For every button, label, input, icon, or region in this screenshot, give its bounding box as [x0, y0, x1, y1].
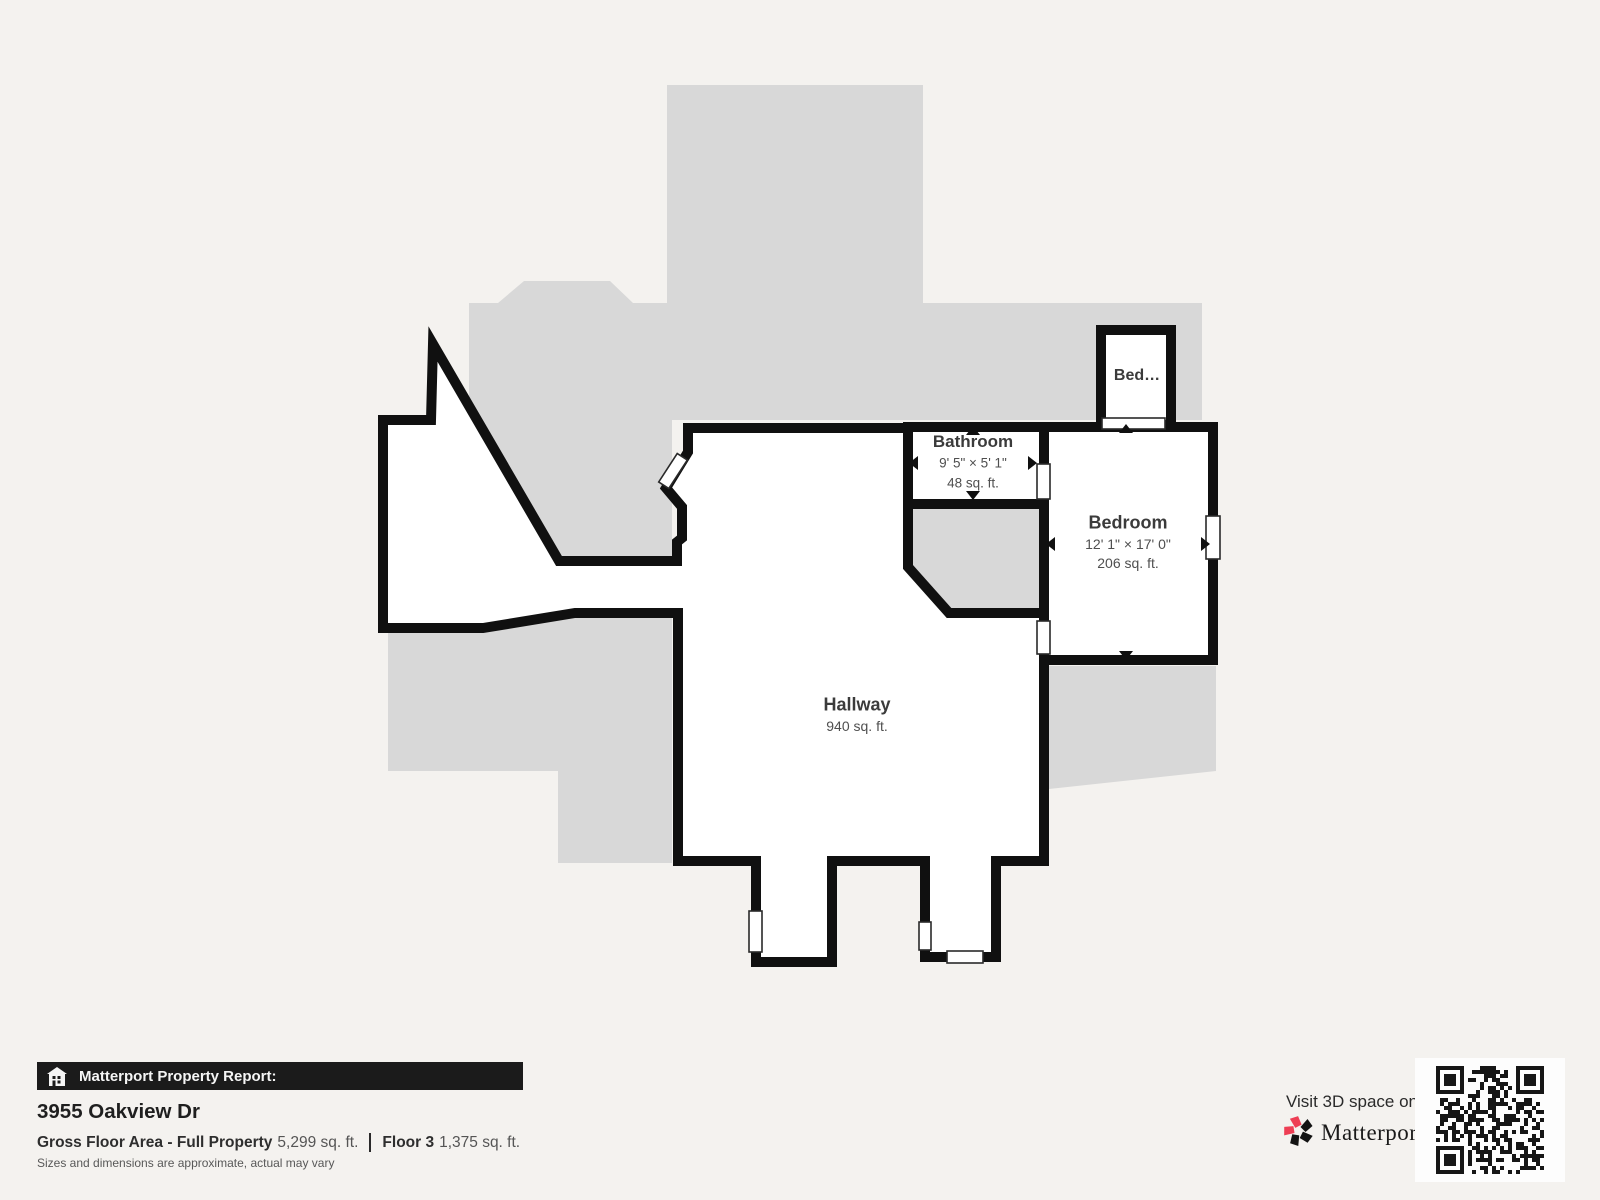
bathroom-bedroom-door [1037, 464, 1050, 499]
floor-area-stats: Gross Floor Area - Full Property 5,299 s… [37, 1133, 520, 1152]
bedroom-area: 206 sq. ft. [1097, 555, 1158, 571]
report-title-bar: Matterport Property Report: [37, 1062, 523, 1090]
small-bedroom-name: Bed… [1114, 367, 1160, 385]
hallway-area: 940 sq. ft. [826, 718, 887, 734]
stats-divider [369, 1133, 371, 1152]
matterport-pinwheel-icon [1283, 1115, 1314, 1151]
bedroom-dimensions: 12' 1" × 17' 0" [1085, 536, 1171, 552]
silhouette-bottom-right [1049, 666, 1216, 789]
small-bedroom-door-sill [1102, 418, 1165, 429]
floor-area-value: 1,375 sq. ft. [439, 1134, 520, 1152]
hallway-right-tab-side-window [919, 922, 931, 950]
disclaimer-text: Sizes and dimensions are approximate, ac… [37, 1156, 334, 1170]
matterport-wordmark: Matterport [1321, 1120, 1424, 1146]
gross-area-label: Gross Floor Area - Full Property [37, 1134, 272, 1152]
gross-area-value: 5,299 sq. ft. [277, 1134, 358, 1152]
bathroom-name: Bathroom [933, 432, 1013, 452]
silhouette-bottom-left [388, 633, 558, 771]
stairwell-area [908, 504, 1044, 613]
floor-plan [0, 0, 1600, 1035]
bathroom-label: Bathroom [933, 432, 1013, 452]
hallway-left-tab-window [749, 911, 762, 952]
floor-label: Floor 3 [382, 1134, 434, 1152]
silhouette-top-block [667, 85, 923, 310]
bedroom-window [1206, 516, 1220, 559]
bathroom-dimensions: 9' 5" × 5' 1" [939, 456, 1007, 471]
qr-code [1436, 1066, 1544, 1174]
hallway-right-tab-bottom-window [947, 951, 983, 963]
report-title: Matterport Property Report: [79, 1068, 277, 1085]
bathroom-area: 48 sq. ft. [947, 476, 999, 491]
silhouette-bottom-middle [558, 610, 672, 863]
matterport-logo: Matterport ® [1283, 1115, 1431, 1151]
hallway-name: Hallway [823, 695, 890, 716]
qr-code-panel [1415, 1058, 1565, 1182]
visit-3d-text: Visit 3D space on [1283, 1092, 1421, 1112]
bedroom-name: Bedroom [1088, 513, 1167, 534]
property-address: 3955 Oakview Dr [37, 1100, 200, 1124]
house-icon [47, 1066, 69, 1086]
bedroom-hallway-door [1037, 621, 1050, 654]
